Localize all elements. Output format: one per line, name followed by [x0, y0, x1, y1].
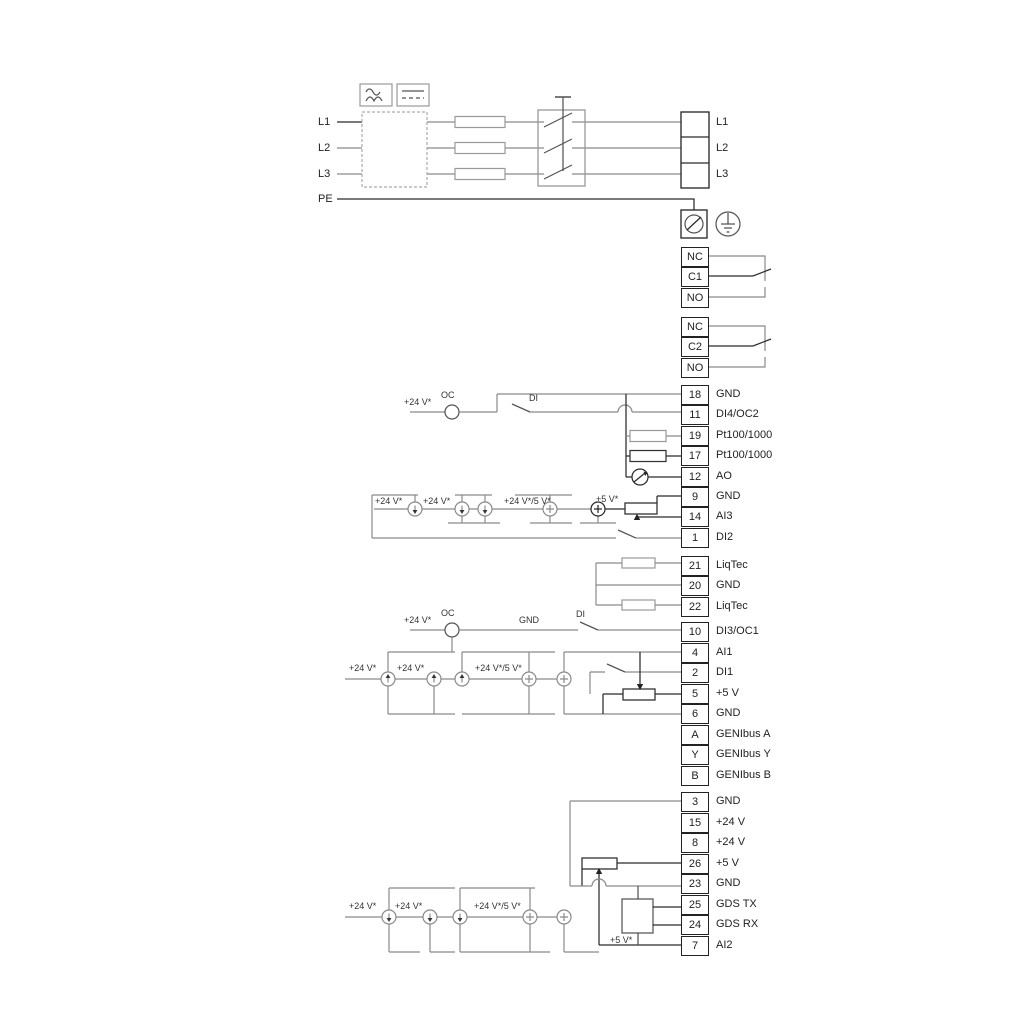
wire-label-24v: +24 V* — [395, 901, 422, 911]
wire-label-24v-5v: +24 V*/5 V* — [504, 496, 551, 506]
terminal-10: 10 — [681, 622, 709, 642]
terminal-7: 7 — [681, 936, 709, 956]
terminal-15-label: +24 V — [716, 815, 745, 829]
terminal-17: 17 — [681, 446, 709, 466]
relay1-c1-terminal: C1 — [681, 267, 709, 287]
terminal-3: 3 — [681, 792, 709, 812]
relay1-contact — [709, 256, 771, 297]
terminal-25-label: GDS TX — [716, 897, 757, 911]
terminal-26-label: +5 V — [716, 856, 739, 870]
terminal-y: Y — [681, 745, 709, 765]
current-source-down-icon — [453, 910, 467, 924]
voltage-source-icon — [591, 502, 605, 516]
relay2-no-terminal: NO — [681, 358, 709, 378]
relay1-no-terminal: NO — [681, 288, 709, 308]
terminal-21: 21 — [681, 556, 709, 576]
wire-label-5v: +5 V* — [610, 935, 632, 945]
current-source-down-icon — [382, 910, 396, 924]
wiring-diagram: L1 L2 L3 PE L1 L2 L3 NC C1 NO NC C2 NO 1… — [0, 0, 1024, 1024]
terminal-6-label: GND — [716, 706, 740, 720]
di3-oc1-circuit — [410, 622, 681, 652]
terminal-14-label: AI3 — [716, 509, 733, 523]
terminal-5-label: +5 V — [716, 686, 739, 700]
mains-out-l3-label: L3 — [716, 167, 728, 181]
resistor-icon — [630, 431, 666, 442]
current-source-down-icon — [478, 502, 492, 516]
resistor-icon — [622, 600, 655, 610]
terminal-20-label: GND — [716, 578, 740, 592]
phase-l3-label: L3 — [318, 167, 330, 181]
mains-terminal-block — [681, 112, 709, 188]
wire-label-oc: OC — [441, 608, 455, 618]
voltage-source-icon — [557, 672, 571, 686]
potentiometer-icon — [582, 858, 617, 869]
terminal-18: 18 — [681, 385, 709, 405]
current-source-up-icon — [381, 672, 395, 686]
main-switch — [538, 97, 585, 186]
terminal-24: 24 — [681, 915, 709, 935]
terminal-1: 1 — [681, 528, 709, 548]
terminal-11-label: DI4/OC2 — [716, 407, 759, 421]
wire-label-oc: OC — [441, 390, 455, 400]
wire-label-24v: +24 V* — [404, 397, 431, 407]
analog-output-meter — [626, 469, 681, 485]
wire-label-24v: +24 V* — [375, 496, 402, 506]
wire-label-24v: +24 V* — [404, 615, 431, 625]
sensor-supply-options-3 — [345, 801, 681, 952]
emc-filter-box — [362, 112, 427, 187]
terminal-10-label: DI3/OC1 — [716, 624, 759, 638]
resistor-icon — [622, 558, 655, 568]
terminal-y-label: GENIbus Y — [716, 747, 771, 761]
terminal-2: 2 — [681, 663, 709, 683]
wire-label-5v: +5 V* — [596, 494, 618, 504]
terminal-24-label: GDS RX — [716, 917, 758, 931]
mains-input-wires — [337, 122, 694, 210]
terminal-25: 25 — [681, 895, 709, 915]
liqtec-circuit — [596, 558, 681, 610]
wire-label-24v: +24 V* — [349, 663, 376, 673]
open-collector-icon — [445, 623, 459, 637]
terminal-11: 11 — [681, 405, 709, 425]
wire-label-gnd: GND — [519, 615, 539, 625]
terminal-6: 6 — [681, 704, 709, 724]
switch-blade-icon — [512, 404, 530, 412]
terminal-12-label: AO — [716, 469, 732, 483]
resistor-icon — [630, 451, 666, 462]
screw-terminal-icon — [681, 210, 707, 238]
relay2-contact — [709, 326, 771, 367]
mains-out-l2-label: L2 — [716, 141, 728, 155]
switch-blade-icon — [607, 664, 625, 672]
current-source-down-icon — [408, 502, 422, 516]
wire-label-24v: +24 V* — [423, 496, 450, 506]
terminal-21-label: LiqTec — [716, 558, 748, 572]
wire-label-di: DI — [576, 609, 585, 619]
terminal-4: 4 — [681, 643, 709, 663]
current-source-up-icon — [455, 672, 469, 686]
terminal-26: 26 — [681, 854, 709, 874]
voltage-source-icon — [522, 672, 536, 686]
terminal-15: 15 — [681, 813, 709, 833]
open-collector-icon — [445, 405, 459, 419]
terminal-18-label: GND — [716, 387, 740, 401]
relay2-c2-terminal: C2 — [681, 337, 709, 357]
wire-label-24v-5v: +24 V*/5 V* — [475, 663, 522, 673]
fuse-symbols — [455, 117, 505, 180]
earth-ground-icon — [716, 212, 740, 236]
terminal-9: 9 — [681, 487, 709, 507]
terminal-7-label: AI2 — [716, 938, 733, 952]
current-source-down-icon — [455, 502, 469, 516]
pt100-sensors — [626, 431, 681, 462]
relay1-nc-terminal: NC — [681, 247, 709, 267]
terminal-b-label: GENIbus B — [716, 768, 771, 782]
pe-label: PE — [318, 192, 333, 206]
wire-hop-icon — [618, 405, 632, 412]
phase-l1-label: L1 — [318, 115, 330, 129]
terminal-20: 20 — [681, 576, 709, 596]
terminal-8-label: +24 V — [716, 835, 745, 849]
switch-blade-icon — [618, 530, 636, 538]
terminal-8: 8 — [681, 833, 709, 853]
terminal-23-label: GND — [716, 876, 740, 890]
wire-label-24v-5v: +24 V*/5 V* — [474, 901, 521, 911]
wiring-diagram-svg — [0, 0, 1024, 1024]
wire-label-24v: +24 V* — [397, 663, 424, 673]
terminal-19: 19 — [681, 426, 709, 446]
phase-l2-label: L2 — [318, 141, 330, 155]
terminal-3-label: GND — [716, 794, 740, 808]
current-source-down-icon — [423, 910, 437, 924]
terminal-5: 5 — [681, 684, 709, 704]
terminal-a: A — [681, 725, 709, 745]
sensor-supply-options-2 — [345, 652, 681, 714]
voltage-source-icon — [523, 910, 537, 924]
switch-blade-icon — [580, 622, 598, 630]
terminal-a-label: GENIbus A — [716, 727, 770, 741]
mains-out-l1-label: L1 — [716, 115, 728, 129]
potentiometer-icon — [623, 689, 655, 700]
wire-label-24v: +24 V* — [349, 901, 376, 911]
gds-sensor-box — [622, 899, 653, 933]
terminal-22: 22 — [681, 597, 709, 617]
voltage-source-icon — [557, 910, 571, 924]
wire-label-di: DI — [529, 393, 538, 403]
terminal-14: 14 — [681, 507, 709, 527]
terminal-9-label: GND — [716, 489, 740, 503]
terminal-1-label: DI2 — [716, 530, 733, 544]
ac-dc-filter-symbols — [360, 84, 429, 187]
relay2-nc-terminal: NC — [681, 317, 709, 337]
current-source-up-icon — [427, 672, 441, 686]
terminal-b: B — [681, 766, 709, 786]
terminal-23: 23 — [681, 874, 709, 894]
terminal-4-label: AI1 — [716, 645, 733, 659]
terminal-2-label: DI1 — [716, 665, 733, 679]
terminal-19-label: Pt100/1000 — [716, 428, 772, 442]
terminal-12: 12 — [681, 467, 709, 487]
potentiometer-icon — [625, 503, 657, 514]
terminal-22-label: LiqTec — [716, 599, 748, 613]
terminal-17-label: Pt100/1000 — [716, 448, 772, 462]
